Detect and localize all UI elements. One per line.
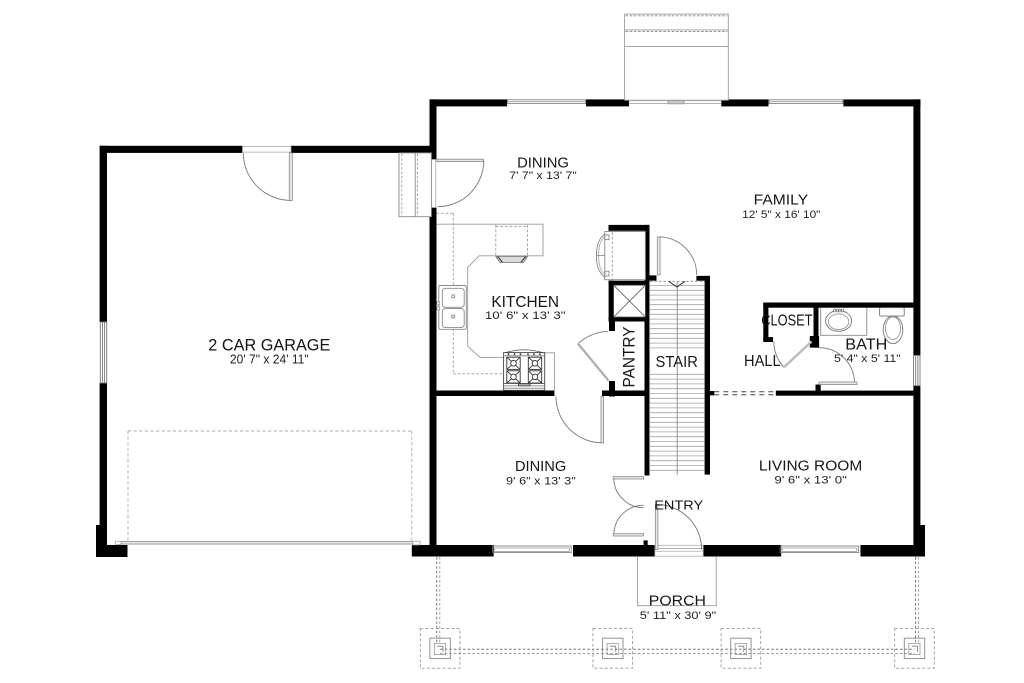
svg-text:KITCHEN: KITCHEN	[491, 294, 559, 311]
svg-text:10' 6" x 13' 3": 10' 6" x 13' 3"	[485, 310, 566, 322]
svg-text:5' 4" x 5' 11": 5' 4" x 5' 11"	[834, 353, 901, 365]
svg-text:9' 6" x 13' 3": 9' 6" x 13' 3"	[506, 475, 576, 487]
svg-text:DINING: DINING	[517, 154, 569, 171]
svg-text:HALL: HALL	[744, 353, 781, 370]
svg-text:DINING: DINING	[515, 458, 566, 475]
svg-text:5' 11" x 30' 9": 5' 11" x 30' 9"	[640, 610, 717, 622]
svg-text:CLOSET: CLOSET	[761, 313, 813, 330]
svg-text:7' 7" x 13' 7": 7' 7" x 13' 7"	[509, 170, 577, 182]
svg-text:BATH: BATH	[845, 337, 887, 354]
svg-text:9' 6" x 13' 0": 9' 6" x 13' 0"	[774, 475, 847, 487]
svg-text:12' 5" x 16' 10": 12' 5" x 16' 10"	[742, 209, 820, 221]
svg-text:ENTRY: ENTRY	[654, 497, 703, 512]
svg-text:FAMILY: FAMILY	[754, 192, 809, 209]
svg-text:STAIR: STAIR	[656, 354, 698, 371]
svg-text:LIVING ROOM: LIVING ROOM	[759, 458, 862, 475]
svg-text:PANTRY: PANTRY	[621, 327, 639, 388]
svg-text:20' 7" x 24' 11": 20' 7" x 24' 11"	[230, 353, 309, 367]
svg-text:PORCH: PORCH	[649, 594, 706, 610]
